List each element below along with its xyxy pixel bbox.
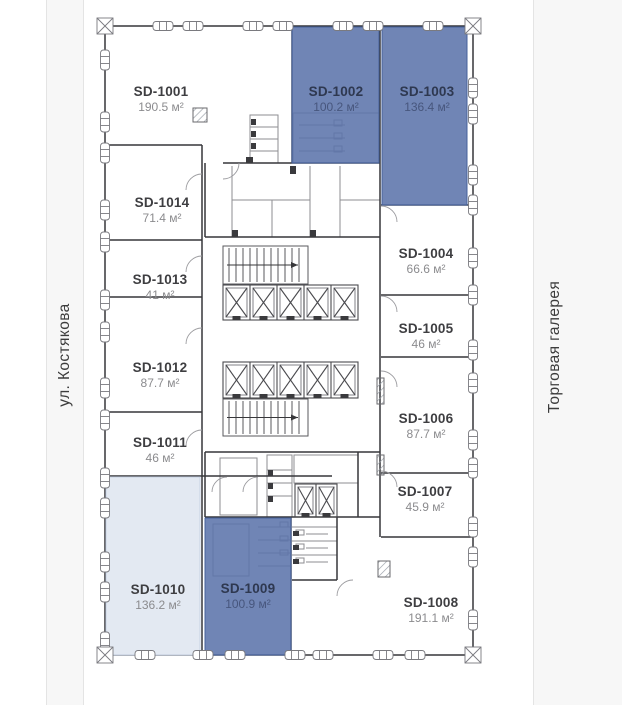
unit-label-sd-1014[interactable]: SD-101471.4 м²: [135, 195, 190, 225]
unit-area: 190.5 м²: [134, 100, 189, 114]
unit-area: 45.9 м²: [398, 500, 453, 514]
unit-name: SD-1003: [400, 84, 455, 100]
unit-name: SD-1009: [221, 581, 276, 597]
floorplan-page: ул. Костякова Торговая галерея: [0, 0, 622, 705]
unit-area: 100.2 м²: [309, 100, 364, 114]
unit-area: 100.9 м²: [221, 597, 276, 611]
unit-label-sd-1009[interactable]: SD-1009100.9 м²: [221, 581, 276, 611]
unit-label-sd-1006[interactable]: SD-100687.7 м²: [399, 411, 454, 441]
unit-name: SD-1002: [309, 84, 364, 100]
unit-label-sd-1005[interactable]: SD-100546 м²: [399, 321, 454, 351]
unit-name: SD-1006: [399, 411, 454, 427]
unit-area: 41 м²: [133, 288, 188, 302]
unit-label-sd-1003[interactable]: SD-1003136.4 м²: [400, 84, 455, 114]
unit-area: 87.7 м²: [399, 427, 454, 441]
unit-highlight-sd-1010[interactable]: [106, 477, 200, 655]
unit-name: SD-1005: [399, 321, 454, 337]
unit-name: SD-1012: [133, 360, 188, 376]
unit-label-sd-1008[interactable]: SD-1008191.1 м²: [404, 595, 459, 625]
unit-area: 136.4 м²: [400, 100, 455, 114]
unit-label-sd-1001[interactable]: SD-1001190.5 м²: [134, 84, 189, 114]
unit-label-sd-1004[interactable]: SD-100466.6 м²: [399, 246, 454, 276]
unit-label-sd-1012[interactable]: SD-101287.7 м²: [133, 360, 188, 390]
unit-label-sd-1010[interactable]: SD-1010136.2 м²: [131, 582, 186, 612]
unit-name: SD-1013: [133, 272, 188, 288]
unit-area: 87.7 м²: [133, 376, 188, 390]
unit-area: 46 м²: [133, 451, 187, 465]
unit-name: SD-1008: [404, 595, 459, 611]
unit-area: 71.4 м²: [135, 211, 190, 225]
unit-name: SD-1014: [135, 195, 190, 211]
unit-name: SD-1007: [398, 484, 453, 500]
unit-label-sd-1013[interactable]: SD-101341 м²: [133, 272, 188, 302]
unit-area: 136.2 м²: [131, 598, 186, 612]
unit-name: SD-1001: [134, 84, 189, 100]
interior-detail-lines: [213, 113, 380, 576]
unit-highlight-sd-1003[interactable]: [382, 27, 467, 205]
unit-name: SD-1004: [399, 246, 454, 262]
unit-area: 46 м²: [399, 337, 454, 351]
unit-name: SD-1010: [131, 582, 186, 598]
unit-label-sd-1007[interactable]: SD-100745.9 м²: [398, 484, 453, 514]
unit-label-sd-1011[interactable]: SD-101146 м²: [133, 435, 187, 465]
unit-label-sd-1002[interactable]: SD-1002100.2 м²: [309, 84, 364, 114]
unit-area: 66.6 м²: [399, 262, 454, 276]
unit-area: 191.1 м²: [404, 611, 459, 625]
unit-name: SD-1011: [133, 435, 187, 451]
